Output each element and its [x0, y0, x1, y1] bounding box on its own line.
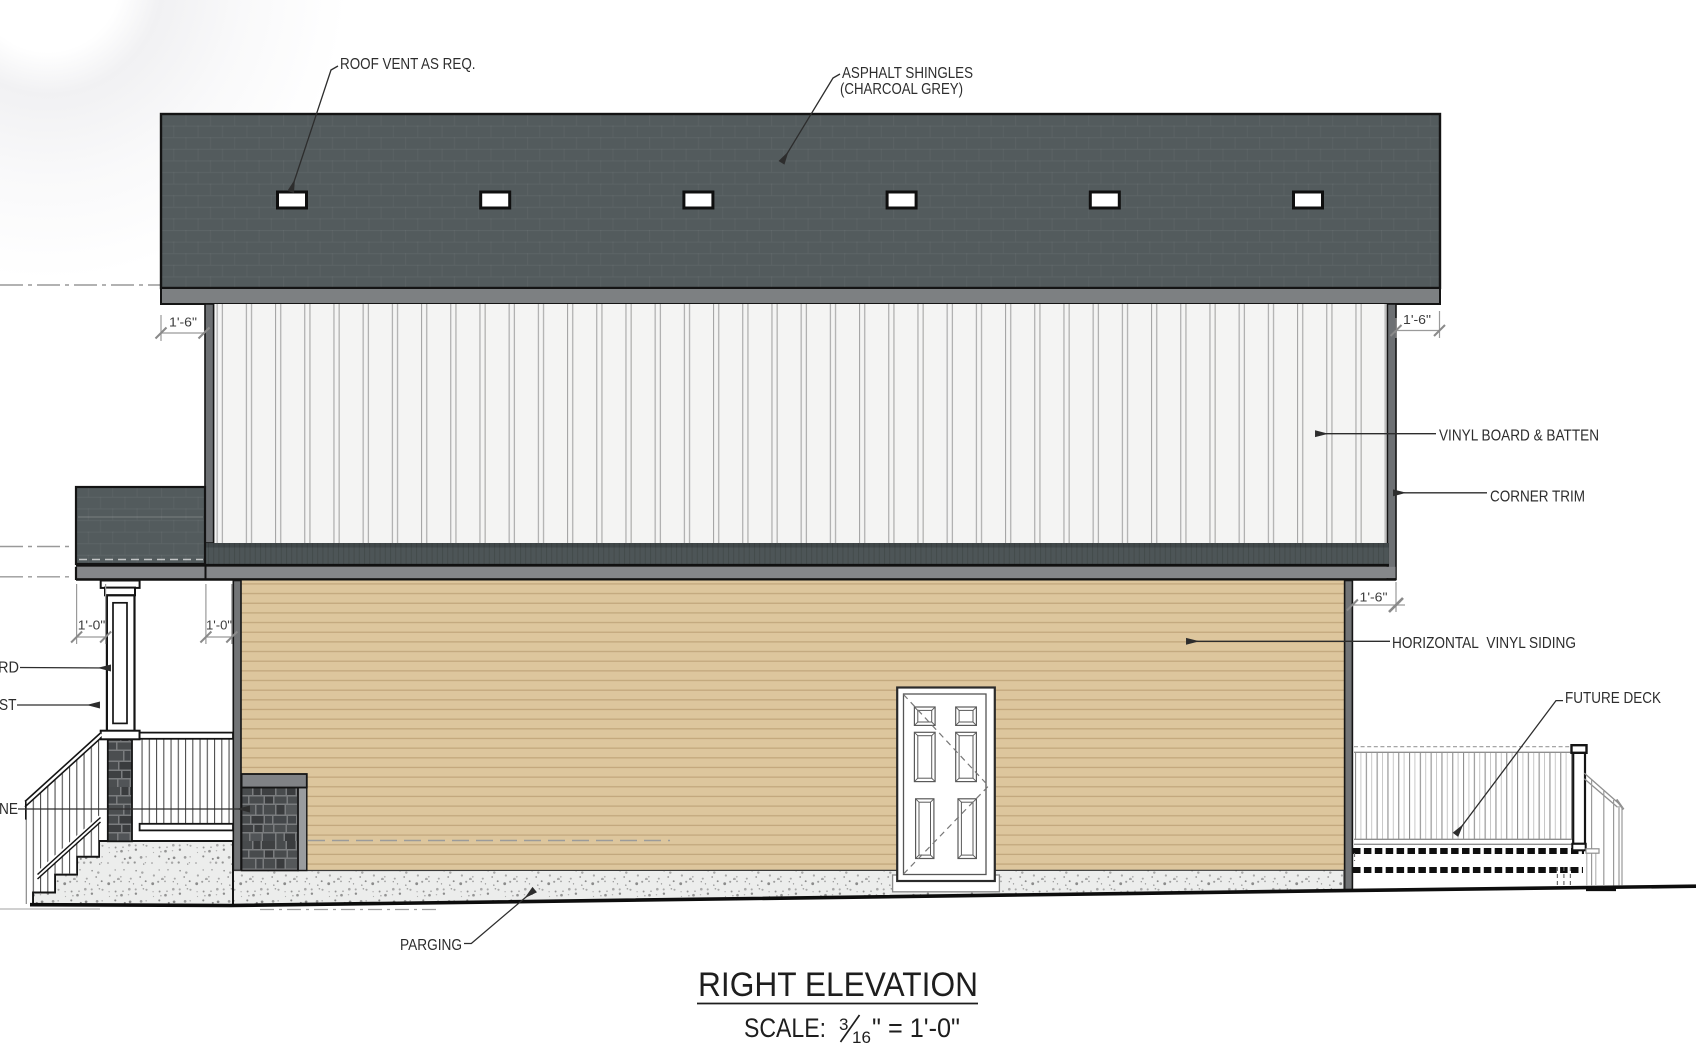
svg-text:SCALE:: SCALE:	[744, 1013, 826, 1043]
svg-text:VINYL BOARD & BATTEN: VINYL BOARD & BATTEN	[1439, 428, 1599, 445]
svg-text:" = 1'-0": " = 1'-0"	[872, 1013, 960, 1043]
svg-text:ROOF VENT AS REQ.: ROOF VENT AS REQ.	[340, 56, 476, 73]
svg-text:CORNER TRIM: CORNER TRIM	[1490, 489, 1585, 506]
svg-text:3: 3	[839, 1015, 848, 1034]
svg-text:RIGHT ELEVATION: RIGHT ELEVATION	[698, 966, 978, 1004]
svg-text:HORIZONTAL VINYL SIDING: HORIZONTAL VINYL SIDING	[1392, 635, 1576, 652]
svg-text:1'-6": 1'-6"	[1403, 312, 1431, 327]
svg-text:NE: NE	[0, 801, 18, 818]
svg-text:ST: ST	[0, 697, 17, 714]
svg-text:1'-0": 1'-0"	[206, 618, 232, 633]
svg-text:RD: RD	[0, 660, 19, 677]
svg-text:ASPHALT SHINGLES: ASPHALT SHINGLES	[842, 65, 973, 82]
svg-text:1'-0": 1'-0"	[78, 618, 106, 633]
svg-text:FUTURE DECK: FUTURE DECK	[1565, 690, 1661, 707]
svg-text:1'-6": 1'-6"	[169, 315, 197, 330]
svg-text:1'-6": 1'-6"	[1360, 590, 1388, 605]
svg-text:PARGING: PARGING	[400, 937, 462, 954]
svg-text:16: 16	[852, 1028, 871, 1045]
svg-text:(CHARCOAL GREY): (CHARCOAL GREY)	[840, 81, 963, 98]
